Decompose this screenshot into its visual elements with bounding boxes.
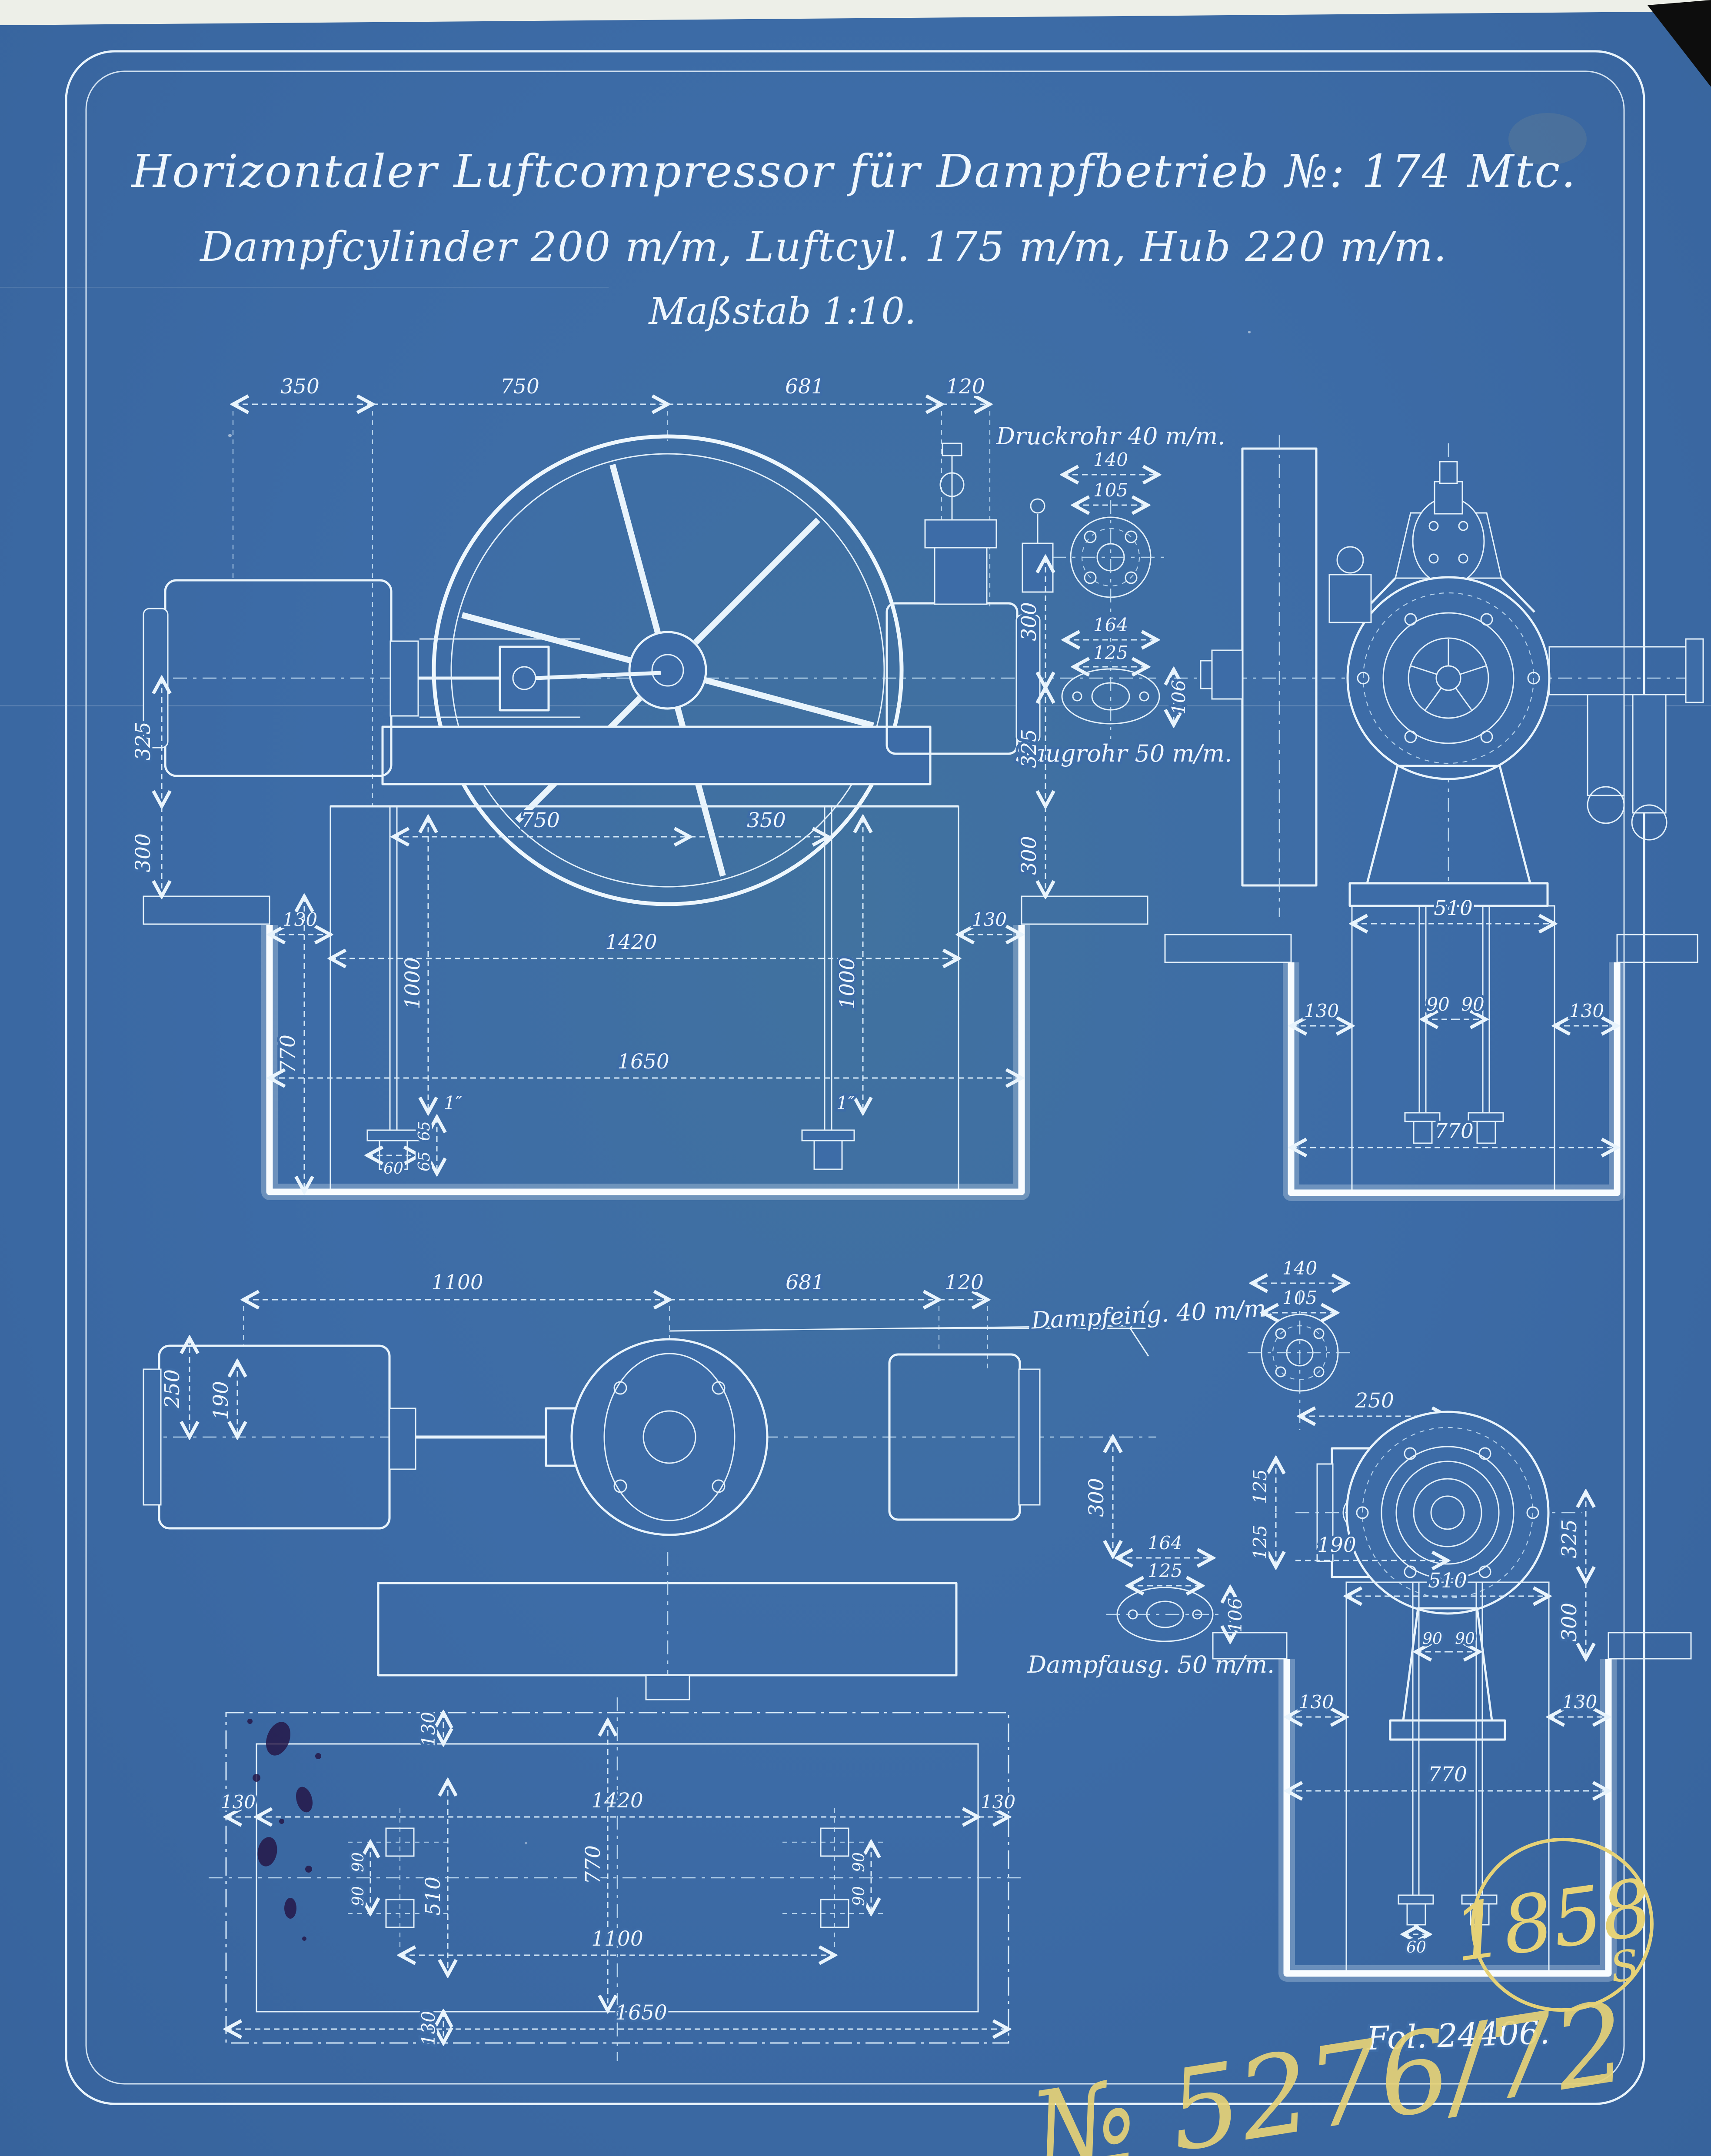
dampfausg-flange	[1106, 1587, 1224, 1641]
dim-label: 140	[1093, 449, 1128, 470]
dim-label: 130	[283, 909, 317, 930]
foundation-section-end	[1165, 906, 1698, 1193]
dim-label: 1″	[444, 1092, 463, 1114]
dim-label: 300	[1558, 1603, 1581, 1642]
dim-label: 125	[1249, 1525, 1271, 1560]
center-body-plan	[572, 1339, 767, 1535]
saugrohr-label: Saugrohr 50 m/m.	[1015, 740, 1232, 767]
dim-label: 1000	[836, 957, 859, 1009]
dim-label: 750	[521, 808, 560, 832]
title-line-3: Maßstab 1:10.	[648, 290, 916, 333]
dim-label: 300	[1017, 602, 1041, 641]
dim-label: 130	[221, 1791, 256, 1813]
dim-label: 250	[160, 1369, 184, 1409]
dim-label: 190	[1317, 1533, 1356, 1557]
dim-label: 120	[946, 375, 985, 399]
dim-label: 130	[1299, 1691, 1334, 1713]
dim-label: 130	[1304, 1000, 1339, 1021]
view-side-elevation: 350 750 681 120	[131, 375, 1156, 1192]
title-line-2: Dampfcylinder 200 m/m, Luftcyl. 175 m/m,…	[199, 223, 1447, 271]
dim-label: 90	[1426, 994, 1449, 1015]
dim-label: 90	[1422, 1630, 1442, 1648]
title-line-1: Horizontaler Luftcompressor für Dampfbet…	[131, 145, 1577, 198]
dim-label: 681	[786, 1271, 825, 1294]
dim-label: 130	[1569, 1000, 1604, 1021]
dim-label: 140	[1282, 1258, 1317, 1279]
dim-label: 164	[1148, 1532, 1182, 1554]
dim-label: 130	[418, 2011, 439, 2046]
corner-dog-ear	[1648, 0, 1711, 87]
dim-label: 164	[1093, 614, 1128, 635]
dim-label: 770	[1428, 1763, 1467, 1787]
dim-label: 130	[418, 1712, 439, 1747]
view-plan: 1100 681 120 250 190 300	[143, 1271, 1156, 2061]
dim-label: 130	[981, 1791, 1015, 1813]
dim-label: 325	[131, 722, 155, 761]
dim-label: 300	[1017, 836, 1041, 875]
title-block: Horizontaler Luftcompressor für Dampfbet…	[131, 145, 1577, 333]
dim-label: 250	[1355, 1389, 1394, 1413]
dim-label: 1420	[591, 1789, 643, 1813]
flywheel-plan	[378, 1552, 956, 1700]
view-end-elevation: 510 130 90 90 130 770	[1165, 435, 1704, 1193]
register-number: № 5276/72	[1018, 1977, 1635, 2156]
dim-label: 125	[1148, 1560, 1182, 1581]
dim-label: 90	[350, 1886, 367, 1906]
dim-label: 1″	[836, 1092, 855, 1114]
dim-label: 1100	[591, 1927, 643, 1951]
dim-label: 106	[1225, 1598, 1246, 1633]
compressor-end	[1329, 462, 1703, 906]
dim-label: 350	[747, 808, 786, 832]
blueprint-drawing: Horizontaler Luftcompressor für Dampfbet…	[0, 0, 1711, 2156]
dim-label: 770	[1435, 1119, 1474, 1143]
dim-label: 60	[383, 1160, 403, 1178]
dim-label: 770	[276, 1035, 300, 1074]
dim-label: 105	[1093, 479, 1128, 501]
dim-label: 510	[1434, 896, 1473, 920]
dim-label: 130	[1562, 1691, 1597, 1713]
dampfausg-label: Dampfausg. 50 m/m.	[1027, 1651, 1275, 1678]
dim-label: 120	[945, 1271, 984, 1294]
druckrohr-label: Druckrohr 40 m/m.	[996, 423, 1225, 450]
dim-label: 681	[785, 375, 824, 399]
air-cylinder	[887, 443, 1053, 754]
dim-label: 90	[850, 1886, 868, 1906]
dim-label: 125	[1093, 642, 1128, 663]
dim-label: 325	[1558, 1519, 1581, 1558]
dim-label: 300	[131, 833, 155, 872]
foundation-section	[143, 806, 1148, 1192]
dim-label: 510	[1428, 1569, 1467, 1593]
dim-label: 1650	[615, 2001, 667, 2025]
ink-blot	[247, 1719, 321, 1941]
dim-label: 1100	[431, 1271, 483, 1294]
dim-label: 750	[500, 375, 539, 399]
dim-label: 1000	[401, 957, 425, 1009]
dim-label: 125	[1249, 1469, 1271, 1504]
blueprint-sheet: Horizontaler Luftcompressor für Dampfbet…	[0, 0, 1711, 2156]
dim-label: 510	[421, 1877, 445, 1916]
dim-label: 1650	[617, 1050, 669, 1074]
dim-label: 106	[1168, 680, 1189, 715]
dim-label: 90	[1455, 1630, 1475, 1648]
dim-label: 65	[416, 1121, 433, 1141]
dim-label: 190	[209, 1381, 233, 1420]
dim-label: 90	[1461, 994, 1484, 1015]
dim-label: 300	[1085, 1478, 1108, 1517]
view-steam-end: Dampfeing. 40 m/m. 140 105 250 125 125 1…	[1027, 1258, 1691, 1973]
dim-label: 350	[280, 375, 320, 399]
flywheel-section	[1201, 435, 1316, 917]
dim-label: 325	[1017, 729, 1041, 768]
dim-label: 130	[972, 909, 1007, 930]
dim-label: 90	[350, 1852, 367, 1872]
dim-label: 60	[1406, 1939, 1426, 1956]
dim-label: 1420	[605, 930, 657, 954]
dim-label: 770	[581, 1845, 605, 1884]
dim-label: 90	[850, 1852, 868, 1872]
dim-label: 65	[416, 1151, 433, 1171]
